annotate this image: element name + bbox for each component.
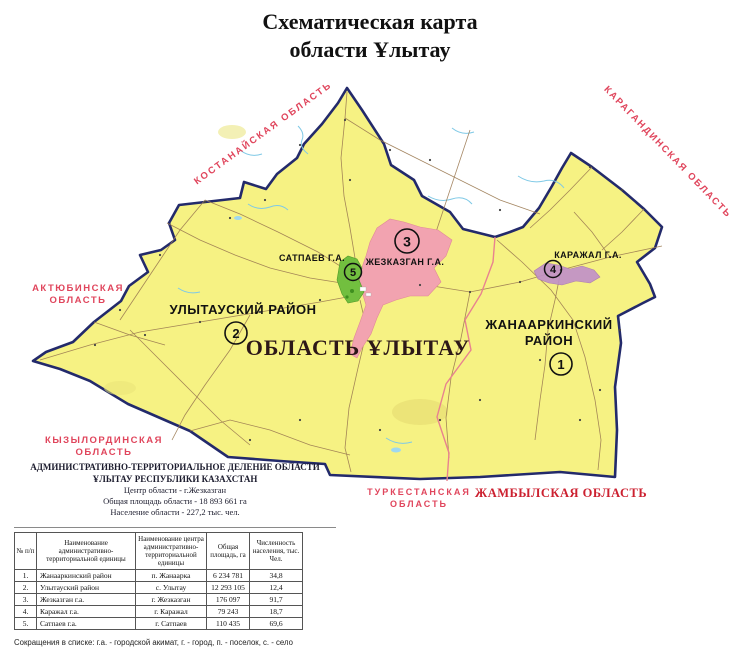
table-cell-num: 5. [15,618,37,630]
label-zhambyl-oblast: ЖАМБЫЛСКАЯ ОБЛАСТЬ [475,486,647,500]
table-cell-unit: Жанааркинский район [37,570,136,582]
separator-line [14,527,336,528]
table-cell-center: п. Жанаарка [136,570,207,582]
table-cell-unit: Каражал г.а. [37,606,136,618]
table-cell-center: г. Жезказган [136,594,207,606]
marker-2-number: 2 [232,326,239,341]
table-cell-center: г. Каражал [136,606,207,618]
table-cell-area: 176 097 [207,594,250,606]
label-kyzylorda-oblast-line1: КЫЗЫЛОРДИНСКАЯ [45,435,163,446]
table-cell-population: 69,6 [250,618,303,630]
table-header-row: № п/п Наименование административно-терри… [15,533,303,570]
label-region-name: ОБЛАСТЬ ҰЛЫТАУ [246,335,470,360]
table-cell-num: 1. [15,570,37,582]
table-cell-population: 91,7 [250,594,303,606]
admin-info-area: Общая площадь области - 18 893 661 га [10,496,340,507]
admin-info-center: Центр области - г.Жезказган [10,485,340,496]
table-cell-area: 12 293 105 [207,582,250,594]
admin-info-heading1: АДМИНИСТРАТИВНО-ТЕРРИТОРИАЛЬНОЕ ДЕЛЕНИЕ … [10,462,340,474]
label-turkestan-oblast-line1: ТУРКЕСТАНСКАЯ [367,487,471,497]
admin-info-block: АДМИНИСТРАТИВНО-ТЕРРИТОРИАЛЬНОЕ ДЕЛЕНИЕ … [10,462,340,518]
table-row: 5. Сатпаев г.а. г. Сатпаев 110 435 69,6 [15,618,303,630]
admin-info-heading2: ҰЛЫТАУ РЕСПУБЛИКИ КАЗАХСТАН [10,474,340,486]
table-header-num: № п/п [15,533,37,570]
label-turkestan-oblast-line2: ОБЛАСТЬ [390,499,448,509]
label-zhezkazgan: ЖЕЗКАЗГАН Г.А. [365,257,445,267]
table-cell-area: 6 234 781 [207,570,250,582]
table-cell-population: 18,7 [250,606,303,618]
table-cell-population: 34,8 [250,570,303,582]
admin-info-population: Население области - 227,2 тыс. чел. [10,507,340,518]
label-zhanaarka-district-line1: ЖАНААРКИНСКИЙ [484,317,612,332]
label-karazhal: КАРАЖАЛ Г.А. [554,250,622,260]
table-cell-num: 4. [15,606,37,618]
table-cell-unit: Сатпаев г.а. [37,618,136,630]
table-cell-num: 3. [15,594,37,606]
marker-4-number: 4 [550,264,557,276]
map-page: Схематическая карта области Ұлытау [0,0,740,650]
table-row: 2. Улытауский район с. Улытау 12 293 105… [15,582,303,594]
table-cell-population: 12,4 [250,582,303,594]
label-kyzylorda-oblast-line2: ОБЛАСТЬ [75,447,132,458]
table-cell-center: с. Улытау [136,582,207,594]
table-header-unit: Наименование административно-территориал… [37,533,136,570]
table-row: 1. Жанааркинский район п. Жанаарка 6 234… [15,570,303,582]
label-aktobe-oblast-line2: ОБЛАСТЬ [49,295,106,306]
label-ulytau-district: УЛЫТАУСКИЙ РАЙОН [170,302,317,317]
table-header-population: Численность населения, тыс. Чел. [250,533,303,570]
table-cell-area: 79 243 [207,606,250,618]
table-header-area: Общая площадь, га [207,533,250,570]
table-row: 3. Жезказган г.а. г. Жезказган 176 097 9… [15,594,303,606]
table-cell-unit: Улытауский район [37,582,136,594]
table-cell-area: 110 435 [207,618,250,630]
marker-3-number: 3 [403,234,411,250]
label-aktobe-oblast-line1: АКТЮБИНСКАЯ [32,283,124,294]
table-cell-center: г. Сатпаев [136,618,207,630]
table-cell-num: 2. [15,582,37,594]
districts-table: № п/п Наименование административно-терри… [14,532,303,630]
abbreviations-footnote: Сокращения в списке: г.а. - городской ак… [14,638,293,647]
table-header-center: Наименование центра административно-терр… [136,533,207,570]
label-zhanaarka-district-line2: РАЙОН [525,333,573,348]
table-row: 4. Каражал г.а. г. Каражал 79 243 18,7 [15,606,303,618]
table-cell-unit: Жезказган г.а. [37,594,136,606]
marker-5-number: 5 [350,267,356,279]
marker-1-number: 1 [557,357,564,372]
label-satpaev: САТПАЕВ Г.А. [279,253,345,263]
